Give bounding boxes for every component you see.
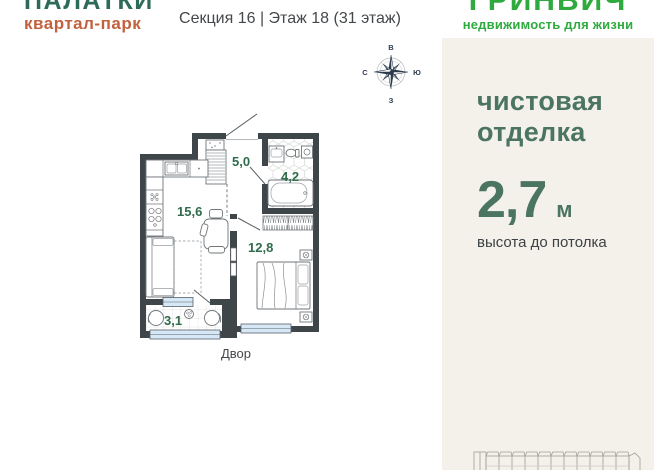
- floorplan: 5,0 4,2 15,6 12,8 3,1 Двор: [128, 104, 332, 366]
- flat-plan-card: ПАЛАТКИ квартал-парк Секция 16 | Этаж 18…: [0, 0, 654, 470]
- compass-icon: В С Ю З: [359, 40, 423, 106]
- compass-label-left: С: [362, 68, 368, 77]
- kitchen-sink-icon: [165, 162, 188, 175]
- dining-table-icon: [200, 210, 228, 254]
- doors: [194, 114, 265, 303]
- balcony-chair-icon: [148, 311, 163, 326]
- washbasin-icon: [269, 146, 284, 162]
- ceiling-height: 2,7 м: [477, 174, 573, 226]
- finish-line2: отделка: [477, 117, 603, 148]
- bedroom-icons: [257, 216, 313, 322]
- ceiling-height-unit: м: [556, 197, 572, 223]
- finish-type: чистовая отделка: [477, 86, 603, 148]
- compass-label-bottom: З: [389, 96, 394, 105]
- bed-icon: [257, 262, 310, 309]
- room-area-hallway: 5,0: [232, 154, 250, 169]
- room-area-kitchen-living: 15,6: [177, 204, 202, 219]
- pocket-door-leaf: [231, 263, 236, 276]
- closet-icon: [263, 216, 313, 230]
- info-panel: ГРИНВИЧ недвижимость для жизни чистовая …: [442, 0, 654, 470]
- balcony-plant-icon: [185, 310, 194, 319]
- balcony-door-swing: [194, 290, 210, 303]
- bedroom-window: [241, 324, 291, 333]
- living-balcony-window: [163, 298, 193, 307]
- room-area-balcony: 3,1: [164, 313, 182, 328]
- washing-machine-icon: [302, 146, 313, 158]
- developer-tagline: недвижимость для жизни: [442, 18, 654, 31]
- brand-logo: ПАЛАТКИ квартал-парк: [24, 0, 154, 32]
- yard-label: Двор: [221, 346, 251, 361]
- brand-title: ПАЛАТКИ: [24, 0, 154, 14]
- compass-label-right: Ю: [413, 68, 421, 77]
- compass-label-top: В: [388, 43, 394, 52]
- room-area-bathroom: 4,2: [281, 169, 299, 184]
- sofa-icon: [146, 237, 201, 297]
- toilet-icon: [286, 149, 299, 157]
- bathroom-door-swing: [250, 167, 265, 184]
- finish-line1: чистовая: [477, 86, 603, 117]
- balcony-window: [150, 330, 220, 339]
- brand-subtitle: квартал-парк: [24, 15, 154, 32]
- bedroom-door-swing: [238, 218, 260, 230]
- nightstand-icon: [300, 250, 312, 260]
- kitchen-icons: [146, 160, 208, 236]
- pocket-door-leaf: [231, 248, 236, 261]
- entry-door-swing: [226, 114, 257, 136]
- developer-logo: ГРИНВИЧ недвижимость для жизни: [442, 0, 654, 38]
- hallway-wardrobe-icon: [206, 140, 226, 184]
- ceiling-height-value: 2,7: [477, 174, 546, 226]
- nightstand-icon: [300, 312, 312, 322]
- ceiling-height-caption: высота до потолка: [477, 234, 607, 251]
- room-area-bedroom: 12,8: [248, 240, 273, 255]
- building-footprint-icon: [472, 449, 644, 470]
- developer-name: ГРИНВИЧ: [442, 0, 654, 16]
- section-floor-info: Секция 16 | Этаж 18 (31 этаж): [150, 10, 430, 28]
- kitchen-cabinets-icon: [146, 177, 163, 236]
